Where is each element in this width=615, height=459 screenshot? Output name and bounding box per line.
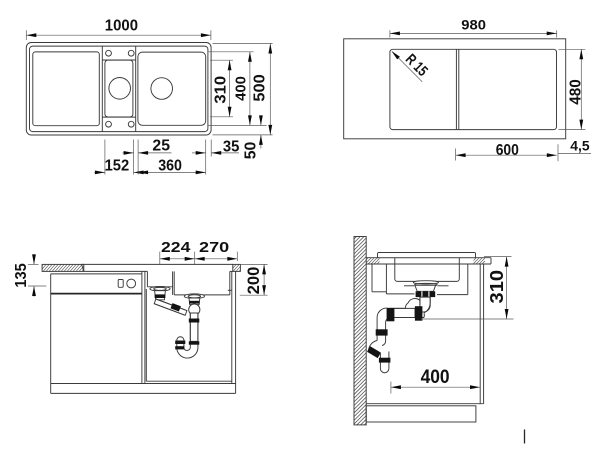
svg-text:360: 360 [158,158,182,175]
svg-text:270: 270 [199,239,229,256]
svg-text:200: 200 [244,267,263,295]
svg-text:310: 310 [487,270,507,304]
svg-text:4,5: 4,5 [570,137,590,153]
svg-text:50: 50 [242,142,259,160]
svg-text:500: 500 [252,74,269,101]
svg-text:980: 980 [461,17,486,33]
svg-text:25: 25 [152,138,170,155]
svg-text:152: 152 [105,157,130,174]
svg-text:310: 310 [213,76,230,104]
svg-text:1000: 1000 [105,18,138,35]
svg-text:224: 224 [161,239,191,256]
svg-text:400: 400 [421,367,450,388]
svg-text:35: 35 [223,138,240,155]
svg-text:600: 600 [496,142,519,159]
svg-text:480: 480 [567,79,584,105]
svg-text:400: 400 [233,76,250,101]
svg-text:135: 135 [13,263,30,287]
